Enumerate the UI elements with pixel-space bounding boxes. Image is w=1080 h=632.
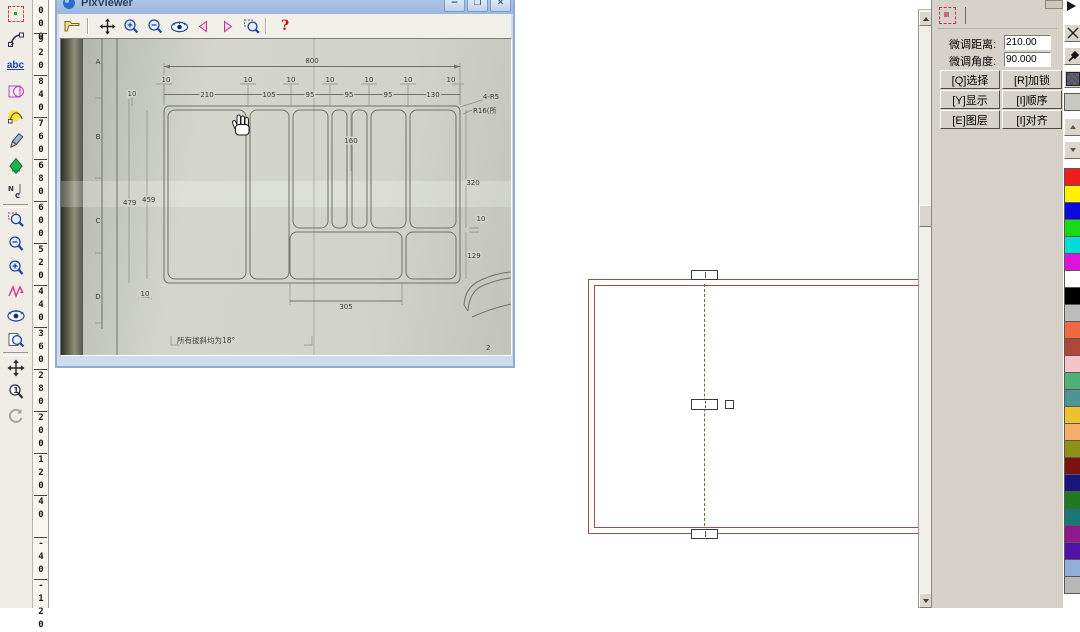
- display-button[interactable]: [Y]显示: [940, 90, 1000, 109]
- palette-color[interactable]: [1064, 304, 1080, 322]
- open-file-icon[interactable]: [63, 17, 83, 35]
- node-handle-middle[interactable]: [691, 399, 718, 410]
- curve-tool-icon[interactable]: [3, 104, 28, 127]
- node-handle-top[interactable]: [691, 270, 718, 280]
- preview-eye-icon[interactable]: [169, 17, 189, 35]
- palette-color[interactable]: [1064, 508, 1080, 526]
- nudge-distance-input[interactable]: [1004, 35, 1051, 50]
- svg-text:10: 10: [162, 76, 171, 84]
- palette-cut-arrow-icon: [1066, 0, 1078, 12]
- blueprint-photo: A B C D: [61, 39, 511, 355]
- align-button[interactable]: [I]对齐: [1002, 110, 1062, 129]
- minimize-button[interactable]: −: [444, 0, 465, 12]
- svg-text:10: 10: [326, 76, 335, 84]
- svg-text:129: 129: [467, 252, 480, 260]
- svg-text:10: 10: [141, 290, 150, 298]
- shape-tool-icon[interactable]: [3, 79, 28, 102]
- pixviewer-titlebar[interactable]: PixViewer − ❐ ✕: [57, 0, 513, 14]
- palette-color[interactable]: [1064, 423, 1080, 441]
- palette-color[interactable]: [1064, 389, 1080, 407]
- left-tool-column: abc NC 1: [0, 0, 33, 608]
- svg-text:C: C: [96, 217, 101, 225]
- palette-color[interactable]: [1064, 202, 1080, 220]
- pixviewer-title: PixViewer: [81, 0, 133, 9]
- svg-text:A: A: [96, 58, 101, 66]
- svg-text:10: 10: [404, 76, 413, 84]
- next-image-icon[interactable]: [217, 17, 237, 35]
- svg-text:10: 10: [244, 76, 253, 84]
- palette-color[interactable]: [1064, 559, 1080, 577]
- svg-text:B: B: [96, 133, 101, 141]
- pattern-fill-button[interactable]: [1064, 70, 1080, 88]
- palette-color[interactable]: [1064, 406, 1080, 424]
- node-handle-side[interactable]: [725, 400, 734, 409]
- text-tool-icon[interactable]: abc: [3, 54, 28, 77]
- palette-color[interactable]: [1064, 321, 1080, 339]
- svg-text:479: 479: [123, 199, 136, 207]
- svg-text:305: 305: [339, 303, 352, 311]
- refresh-tool-icon[interactable]: [3, 404, 28, 427]
- lock-button[interactable]: [R]加锁: [1002, 70, 1062, 89]
- palette-color[interactable]: [1064, 457, 1080, 475]
- current-color-swatch[interactable]: [1064, 93, 1080, 111]
- order-button[interactable]: [I]顺序: [1002, 90, 1062, 109]
- pan-tool-icon[interactable]: [3, 356, 28, 379]
- palette-scroll-down[interactable]: [1064, 141, 1080, 159]
- panel-tab-separator: [965, 7, 966, 24]
- panel-window-button[interactable]: [1045, 0, 1063, 9]
- node-edit-tool-icon[interactable]: [3, 27, 28, 50]
- svg-text:95: 95: [306, 91, 315, 99]
- panel-tab-icon[interactable]: [939, 7, 956, 24]
- svg-text:R16(所: R16(所: [473, 106, 497, 115]
- svg-text:10: 10: [447, 76, 456, 84]
- eyedropper-button[interactable]: [1064, 47, 1080, 65]
- palette-color[interactable]: [1064, 338, 1080, 356]
- preview-eye-tool-icon[interactable]: [3, 304, 28, 327]
- pan-icon[interactable]: [97, 17, 117, 35]
- svg-text:320: 320: [466, 179, 479, 187]
- svg-text:4-R5: 4-R5: [483, 93, 499, 101]
- palette-color[interactable]: [1064, 219, 1080, 237]
- palette-color[interactable]: [1064, 525, 1080, 543]
- pixviewer-window[interactable]: PixViewer − ❐ ✕ ? A B C D: [55, 0, 515, 368]
- svg-text:95: 95: [384, 91, 393, 99]
- hand-cursor: [232, 115, 249, 135]
- svg-text:800: 800: [305, 57, 318, 65]
- svg-text:所有拔斜均为18°: 所有拔斜均为18°: [177, 335, 236, 345]
- pencil-tool-icon[interactable]: [3, 129, 28, 152]
- pixviewer-toolbar: ?: [59, 14, 511, 39]
- nudge-distance-label: 微调距离:: [949, 36, 996, 52]
- svg-text:130: 130: [426, 91, 439, 99]
- engrave-3d-tool-icon[interactable]: [3, 154, 28, 177]
- node-handle-bottom[interactable]: [691, 529, 718, 539]
- zoom-in-tool-icon[interactable]: [3, 256, 28, 279]
- nudge-panel: 微调距离: 微调角度: [Q]选择 [R]加锁 [Y]显示 [I]顺序 [E]图…: [931, 0, 1063, 608]
- palette-color[interactable]: [1064, 185, 1080, 203]
- select-button[interactable]: [Q]选择: [940, 70, 1000, 89]
- zoom-actual-tool-icon[interactable]: 1: [3, 380, 28, 403]
- maximize-button[interactable]: ❐: [467, 0, 488, 12]
- svg-text:D: D: [95, 293, 100, 301]
- zoom-page-tool-icon[interactable]: [3, 328, 28, 351]
- workpiece-rect-inner[interactable]: [594, 285, 918, 528]
- svg-text:210: 210: [200, 91, 213, 99]
- palette-color[interactable]: [1064, 576, 1080, 594]
- svg-text:105: 105: [262, 91, 275, 99]
- svg-text:459: 459: [142, 196, 155, 204]
- select-tool-icon[interactable]: [3, 2, 28, 25]
- svg-text:160: 160: [344, 137, 357, 145]
- close-button[interactable]: ✕: [490, 0, 511, 12]
- svg-text:10: 10: [287, 76, 296, 84]
- toolbar-separator: [87, 18, 89, 34]
- palette-color[interactable]: [1064, 287, 1080, 305]
- palette-color[interactable]: [1064, 372, 1080, 390]
- nc-path-tool-icon[interactable]: NC: [3, 179, 28, 202]
- help-icon[interactable]: ?: [275, 17, 295, 35]
- svg-text:95: 95: [345, 91, 354, 99]
- palette-color[interactable]: [1064, 253, 1080, 271]
- zoom-out-icon[interactable]: [145, 17, 165, 35]
- zoom-in-icon[interactable]: [121, 17, 141, 35]
- palette-color[interactable]: [1064, 440, 1080, 458]
- pixviewer-app-icon: [62, 0, 76, 10]
- palette-scroll-up[interactable]: [1064, 118, 1080, 136]
- vertical-ruler: 1000 920 840 760 680 600 520 440 360 280…: [33, 0, 49, 608]
- svg-text:10: 10: [365, 76, 374, 84]
- svg-text:N: N: [8, 185, 14, 193]
- palette-color[interactable]: [1064, 168, 1080, 186]
- prev-image-icon[interactable]: [193, 17, 213, 35]
- palette-color[interactable]: [1064, 236, 1080, 254]
- svg-text:10: 10: [128, 90, 137, 98]
- pixviewer-image-area[interactable]: A B C D: [60, 38, 512, 356]
- zoom-out-tool-icon[interactable]: [3, 232, 28, 255]
- svg-text:1: 1: [13, 386, 19, 395]
- palette-color[interactable]: [1064, 491, 1080, 509]
- layer-button[interactable]: [E]图层: [940, 110, 1000, 129]
- palette-color[interactable]: [1064, 355, 1080, 373]
- no-fill-button[interactable]: [1064, 24, 1080, 42]
- zoom-select-icon[interactable]: [241, 17, 261, 35]
- svg-text:2: 2: [486, 344, 490, 352]
- svg-text:10: 10: [477, 215, 486, 223]
- palette-color[interactable]: [1064, 270, 1080, 288]
- zoom-region-tool-icon[interactable]: [3, 208, 28, 231]
- nudge-angle-input[interactable]: [1004, 52, 1051, 67]
- palette-color[interactable]: [1064, 542, 1080, 560]
- palette-color[interactable]: [1064, 474, 1080, 492]
- toolbar-separator: [265, 18, 267, 34]
- canvas-vertical-scrollbar[interactable]: [918, 10, 932, 608]
- nudge-angle-label: 微调角度:: [949, 53, 996, 69]
- redraw-tool-icon[interactable]: [3, 280, 28, 303]
